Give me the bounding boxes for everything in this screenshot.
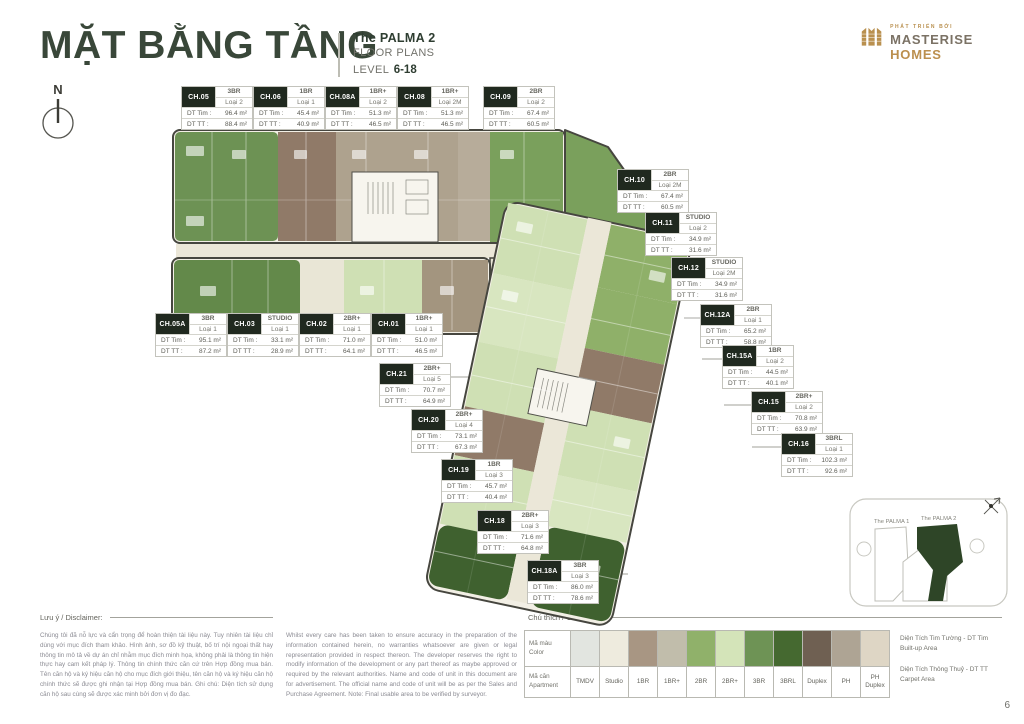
unit-dt-tim-value: 34.9 m²	[715, 281, 737, 288]
unit-code: CH.21	[380, 364, 413, 384]
unit-dt-tim-value: 71.6 m²	[521, 534, 543, 541]
unit-dt-tim-label: DT Tim :	[728, 369, 752, 376]
unit-code: CH.12A	[701, 305, 734, 325]
unit-variant: Loại 1	[334, 325, 370, 335]
unit-dt-tim-value: 44.5 m²	[766, 369, 788, 376]
unit-card-ch-05a: CH.05A 3BR Loại 1 DT Tim : 95.1 m² DT TT…	[155, 313, 227, 357]
unit-dt-tim-label: DT Tim :	[233, 337, 257, 344]
unit-type: 3BR	[190, 314, 226, 325]
unit-type: 3BRL	[816, 434, 852, 445]
unit-dt-tt-value: 63.9 m²	[795, 426, 817, 433]
unit-code: CH.08A	[326, 87, 359, 107]
unit-dt-tim-label: DT Tim :	[305, 337, 329, 344]
unit-code: CH.19	[442, 460, 475, 480]
unit-dt-tim-value: 45.4 m²	[297, 110, 319, 117]
unit-variant: Loại 2M	[432, 98, 468, 108]
unit-variant: Loại 2	[518, 98, 554, 108]
unit-variant: Loại 2	[680, 224, 716, 234]
unit-dt-tt-value: 46.5 m²	[415, 348, 437, 355]
unit-card-ch-09: CH.09 2BR Loại 2 DT Tim : 67.4 m² DT TT …	[483, 86, 555, 130]
unit-type: STUDIO	[680, 213, 716, 224]
unit-code: CH.12	[672, 258, 705, 278]
unit-dt-tt-label: DT TT :	[651, 247, 673, 254]
unit-dt-tt-label: DT TT :	[331, 121, 353, 128]
unit-variant: Loại 3	[476, 471, 512, 481]
floor-plan-page: MẶT BẰNG TẦNG The PALMA 2 FLOOR PLANS LE…	[0, 0, 1024, 724]
unit-type: 2BR+	[414, 364, 450, 375]
unit-code: CH.01	[372, 314, 405, 334]
unit-dt-tt-value: 60.5 m²	[661, 204, 683, 211]
unit-dt-tt-label: DT TT :	[305, 348, 327, 355]
unit-dt-tt-value: 67.3 m²	[455, 444, 477, 451]
unit-cards-layer: CH.05 3BR Loại 2 DT Tim : 96.4 m² DT TT …	[0, 0, 1024, 724]
unit-code: CH.10	[618, 170, 651, 190]
unit-card-ch-08: CH.08 1BR+ Loại 2M DT Tim : 51.3 m² DT T…	[397, 86, 469, 130]
unit-dt-tt-label: DT TT :	[677, 292, 699, 299]
unit-code: CH.05A	[156, 314, 189, 334]
unit-dt-tt-value: 92.6 m²	[825, 468, 847, 475]
unit-card-ch-02: CH.02 2BR+ Loại 1 DT Tim : 71.0 m² DT TT…	[299, 313, 371, 357]
unit-card-ch-08a: CH.08A 1BR+ Loại 2 DT Tim : 51.3 m² DT T…	[325, 86, 397, 130]
unit-type: 1BR+	[360, 87, 396, 98]
unit-variant: Loại 1	[406, 325, 442, 335]
unit-card-ch-12: CH.12 STUDIO Loại 2M DT Tim : 34.9 m² DT…	[671, 257, 743, 301]
unit-dt-tim-value: 73.1 m²	[455, 433, 477, 440]
unit-variant: Loại 2	[786, 403, 822, 413]
unit-dt-tt-label: DT TT :	[417, 444, 439, 451]
unit-type: 2BR	[652, 170, 688, 181]
unit-type: 2BR	[735, 305, 771, 316]
unit-code: CH.06	[254, 87, 287, 107]
unit-card-ch-18: CH.18 2BR+ Loại 3 DT Tim : 71.6 m² DT TT…	[477, 510, 549, 554]
unit-card-ch-06: CH.06 1BR Loại 1 DT Tim : 45.4 m² DT TT …	[253, 86, 325, 130]
unit-dt-tim-value: 70.8 m²	[795, 415, 817, 422]
unit-dt-tt-label: DT TT :	[161, 348, 183, 355]
unit-type: 3BR	[216, 87, 252, 98]
unit-code: CH.15A	[723, 346, 756, 366]
unit-dt-tim-label: DT Tim :	[161, 337, 185, 344]
unit-dt-tt-label: DT TT :	[757, 426, 779, 433]
unit-code: CH.09	[484, 87, 517, 107]
unit-dt-tt-value: 40.9 m²	[297, 121, 319, 128]
unit-card-ch-21: CH.21 2BR+ Loại 5 DT Tim : 70.7 m² DT TT…	[379, 363, 451, 407]
unit-card-ch-11: CH.11 STUDIO Loại 2 DT Tim : 34.9 m² DT …	[645, 212, 717, 256]
unit-dt-tt-value: 46.5 m²	[441, 121, 463, 128]
unit-type: 1BR+	[406, 314, 442, 325]
unit-dt-tt-value: 31.6 m²	[689, 247, 711, 254]
unit-dt-tt-value: 78.6 m²	[571, 595, 593, 602]
unit-dt-tim-label: DT Tim :	[483, 534, 507, 541]
unit-type: 1BR	[476, 460, 512, 471]
unit-card-ch-10: CH.10 2BR Loại 2M DT Tim : 67.4 m² DT TT…	[617, 169, 689, 213]
unit-type: 2BR+	[786, 392, 822, 403]
unit-card-ch-01: CH.01 1BR+ Loại 1 DT Tim : 51.0 m² DT TT…	[371, 313, 443, 357]
unit-card-ch-05: CH.05 3BR Loại 2 DT Tim : 96.4 m² DT TT …	[181, 86, 253, 130]
unit-dt-tt-value: 64.8 m²	[521, 545, 543, 552]
unit-dt-tt-label: DT TT :	[489, 121, 511, 128]
unit-variant: Loại 1	[816, 445, 852, 455]
unit-dt-tim-value: 67.4 m²	[527, 110, 549, 117]
unit-dt-tim-label: DT Tim :	[447, 483, 471, 490]
unit-dt-tt-value: 88.4 m²	[225, 121, 247, 128]
unit-variant: Loại 3	[512, 522, 548, 532]
unit-type: 3BR	[562, 561, 598, 572]
unit-type: 1BR+	[432, 87, 468, 98]
unit-variant: Loại 1	[190, 325, 226, 335]
unit-type: STUDIO	[262, 314, 298, 325]
unit-dt-tim-label: DT Tim :	[757, 415, 781, 422]
unit-dt-tim-label: DT Tim :	[377, 337, 401, 344]
unit-variant: Loại 2	[360, 98, 396, 108]
unit-dt-tim-label: DT Tim :	[403, 110, 427, 117]
unit-dt-tt-label: DT TT :	[623, 204, 645, 211]
unit-dt-tim-label: DT Tim :	[385, 387, 409, 394]
unit-card-ch-03: CH.03 STUDIO Loại 1 DT Tim : 33.1 m² DT …	[227, 313, 299, 357]
unit-variant: Loại 2	[757, 357, 793, 367]
unit-dt-tim-label: DT Tim :	[533, 584, 557, 591]
unit-dt-tim-value: 71.0 m²	[343, 337, 365, 344]
unit-dt-tt-label: DT TT :	[728, 380, 750, 387]
unit-code: CH.02	[300, 314, 333, 334]
unit-dt-tim-label: DT Tim :	[623, 193, 647, 200]
unit-card-ch-20: CH.20 2BR+ Loại 4 DT Tim : 73.1 m² DT TT…	[411, 409, 483, 453]
unit-type: 1BR	[288, 87, 324, 98]
unit-dt-tim-label: DT Tim :	[489, 110, 513, 117]
unit-code: CH.20	[412, 410, 445, 430]
unit-dt-tim-label: DT Tim :	[677, 281, 701, 288]
unit-dt-tt-label: DT TT :	[533, 595, 555, 602]
unit-dt-tim-label: DT Tim :	[651, 236, 675, 243]
unit-type: 2BR+	[512, 511, 548, 522]
unit-card-ch-19: CH.19 1BR Loại 3 DT Tim : 45.7 m² DT TT …	[441, 459, 513, 503]
unit-dt-tt-value: 31.6 m²	[715, 292, 737, 299]
unit-dt-tt-value: 40.4 m²	[485, 494, 507, 501]
unit-dt-tt-value: 87.2 m²	[199, 348, 221, 355]
unit-dt-tt-label: DT TT :	[447, 494, 469, 501]
unit-dt-tim-value: 45.7 m²	[485, 483, 507, 490]
unit-code: CH.03	[228, 314, 261, 334]
unit-card-ch-15: CH.15 2BR+ Loại 2 DT Tim : 70.8 m² DT TT…	[751, 391, 823, 435]
unit-dt-tt-label: DT TT :	[233, 348, 255, 355]
unit-type: 2BR	[518, 87, 554, 98]
unit-code: CH.15	[752, 392, 785, 412]
unit-dt-tim-value: 67.4 m²	[661, 193, 683, 200]
unit-dt-tt-label: DT TT :	[377, 348, 399, 355]
unit-dt-tt-value: 46.5 m²	[369, 121, 391, 128]
unit-code: CH.05	[182, 87, 215, 107]
unit-dt-tt-value: 40.1 m²	[766, 380, 788, 387]
unit-type: 2BR+	[334, 314, 370, 325]
unit-code: CH.18	[478, 511, 511, 531]
unit-variant: Loại 1	[262, 325, 298, 335]
unit-dt-tt-value: 64.1 m²	[343, 348, 365, 355]
unit-dt-tim-label: DT Tim :	[787, 457, 811, 464]
unit-dt-tim-value: 51.3 m²	[369, 110, 391, 117]
unit-variant: Loại 2M	[652, 181, 688, 191]
unit-dt-tim-value: 65.2 m²	[744, 328, 766, 335]
unit-dt-tim-value: 51.0 m²	[415, 337, 437, 344]
unit-dt-tim-value: 95.1 m²	[199, 337, 221, 344]
unit-dt-tt-label: DT TT :	[259, 121, 281, 128]
unit-dt-tt-label: DT TT :	[385, 398, 407, 405]
unit-dt-tim-label: DT Tim :	[417, 433, 441, 440]
unit-dt-tt-value: 28.9 m²	[271, 348, 293, 355]
unit-dt-tim-label: DT Tim :	[331, 110, 355, 117]
unit-card-ch-16: CH.16 3BRL Loại 1 DT Tim : 102.3 m² DT T…	[781, 433, 853, 477]
unit-dt-tim-value: 102.3 m²	[821, 457, 847, 464]
unit-variant: Loại 1	[288, 98, 324, 108]
unit-dt-tim-value: 51.3 m²	[441, 110, 463, 117]
unit-card-ch-18a: CH.18A 3BR Loại 3 DT Tim : 86.0 m² DT TT…	[527, 560, 599, 604]
unit-type: STUDIO	[706, 258, 742, 269]
unit-variant: Loại 2M	[706, 269, 742, 279]
unit-code: CH.18A	[528, 561, 561, 581]
unit-code: CH.08	[398, 87, 431, 107]
unit-dt-tim-label: DT Tim :	[187, 110, 211, 117]
unit-dt-tt-label: DT TT :	[787, 468, 809, 475]
unit-variant: Loại 4	[446, 421, 482, 431]
unit-dt-tim-value: 96.4 m²	[225, 110, 247, 117]
unit-card-ch-12a: CH.12A 2BR Loại 1 DT Tim : 65.2 m² DT TT…	[700, 304, 772, 348]
unit-variant: Loại 5	[414, 375, 450, 385]
unit-variant: Loại 3	[562, 572, 598, 582]
unit-variant: Loại 2	[216, 98, 252, 108]
unit-type: 2BR+	[446, 410, 482, 421]
unit-dt-tim-value: 70.7 m²	[423, 387, 445, 394]
unit-dt-tt-value: 64.9 m²	[423, 398, 445, 405]
unit-dt-tt-label: DT TT :	[403, 121, 425, 128]
unit-type: 1BR	[757, 346, 793, 357]
unit-dt-tim-label: DT Tim :	[706, 328, 730, 335]
unit-dt-tim-value: 86.0 m²	[571, 584, 593, 591]
unit-dt-tim-value: 34.9 m²	[689, 236, 711, 243]
unit-dt-tt-label: DT TT :	[483, 545, 505, 552]
unit-variant: Loại 1	[735, 316, 771, 326]
unit-dt-tt-label: DT TT :	[187, 121, 209, 128]
unit-code: CH.16	[782, 434, 815, 454]
unit-dt-tim-value: 33.1 m²	[271, 337, 293, 344]
unit-dt-tt-value: 60.5 m²	[527, 121, 549, 128]
unit-dt-tim-label: DT Tim :	[259, 110, 283, 117]
unit-card-ch-15a: CH.15A 1BR Loại 2 DT Tim : 44.5 m² DT TT…	[722, 345, 794, 389]
unit-code: CH.11	[646, 213, 679, 233]
